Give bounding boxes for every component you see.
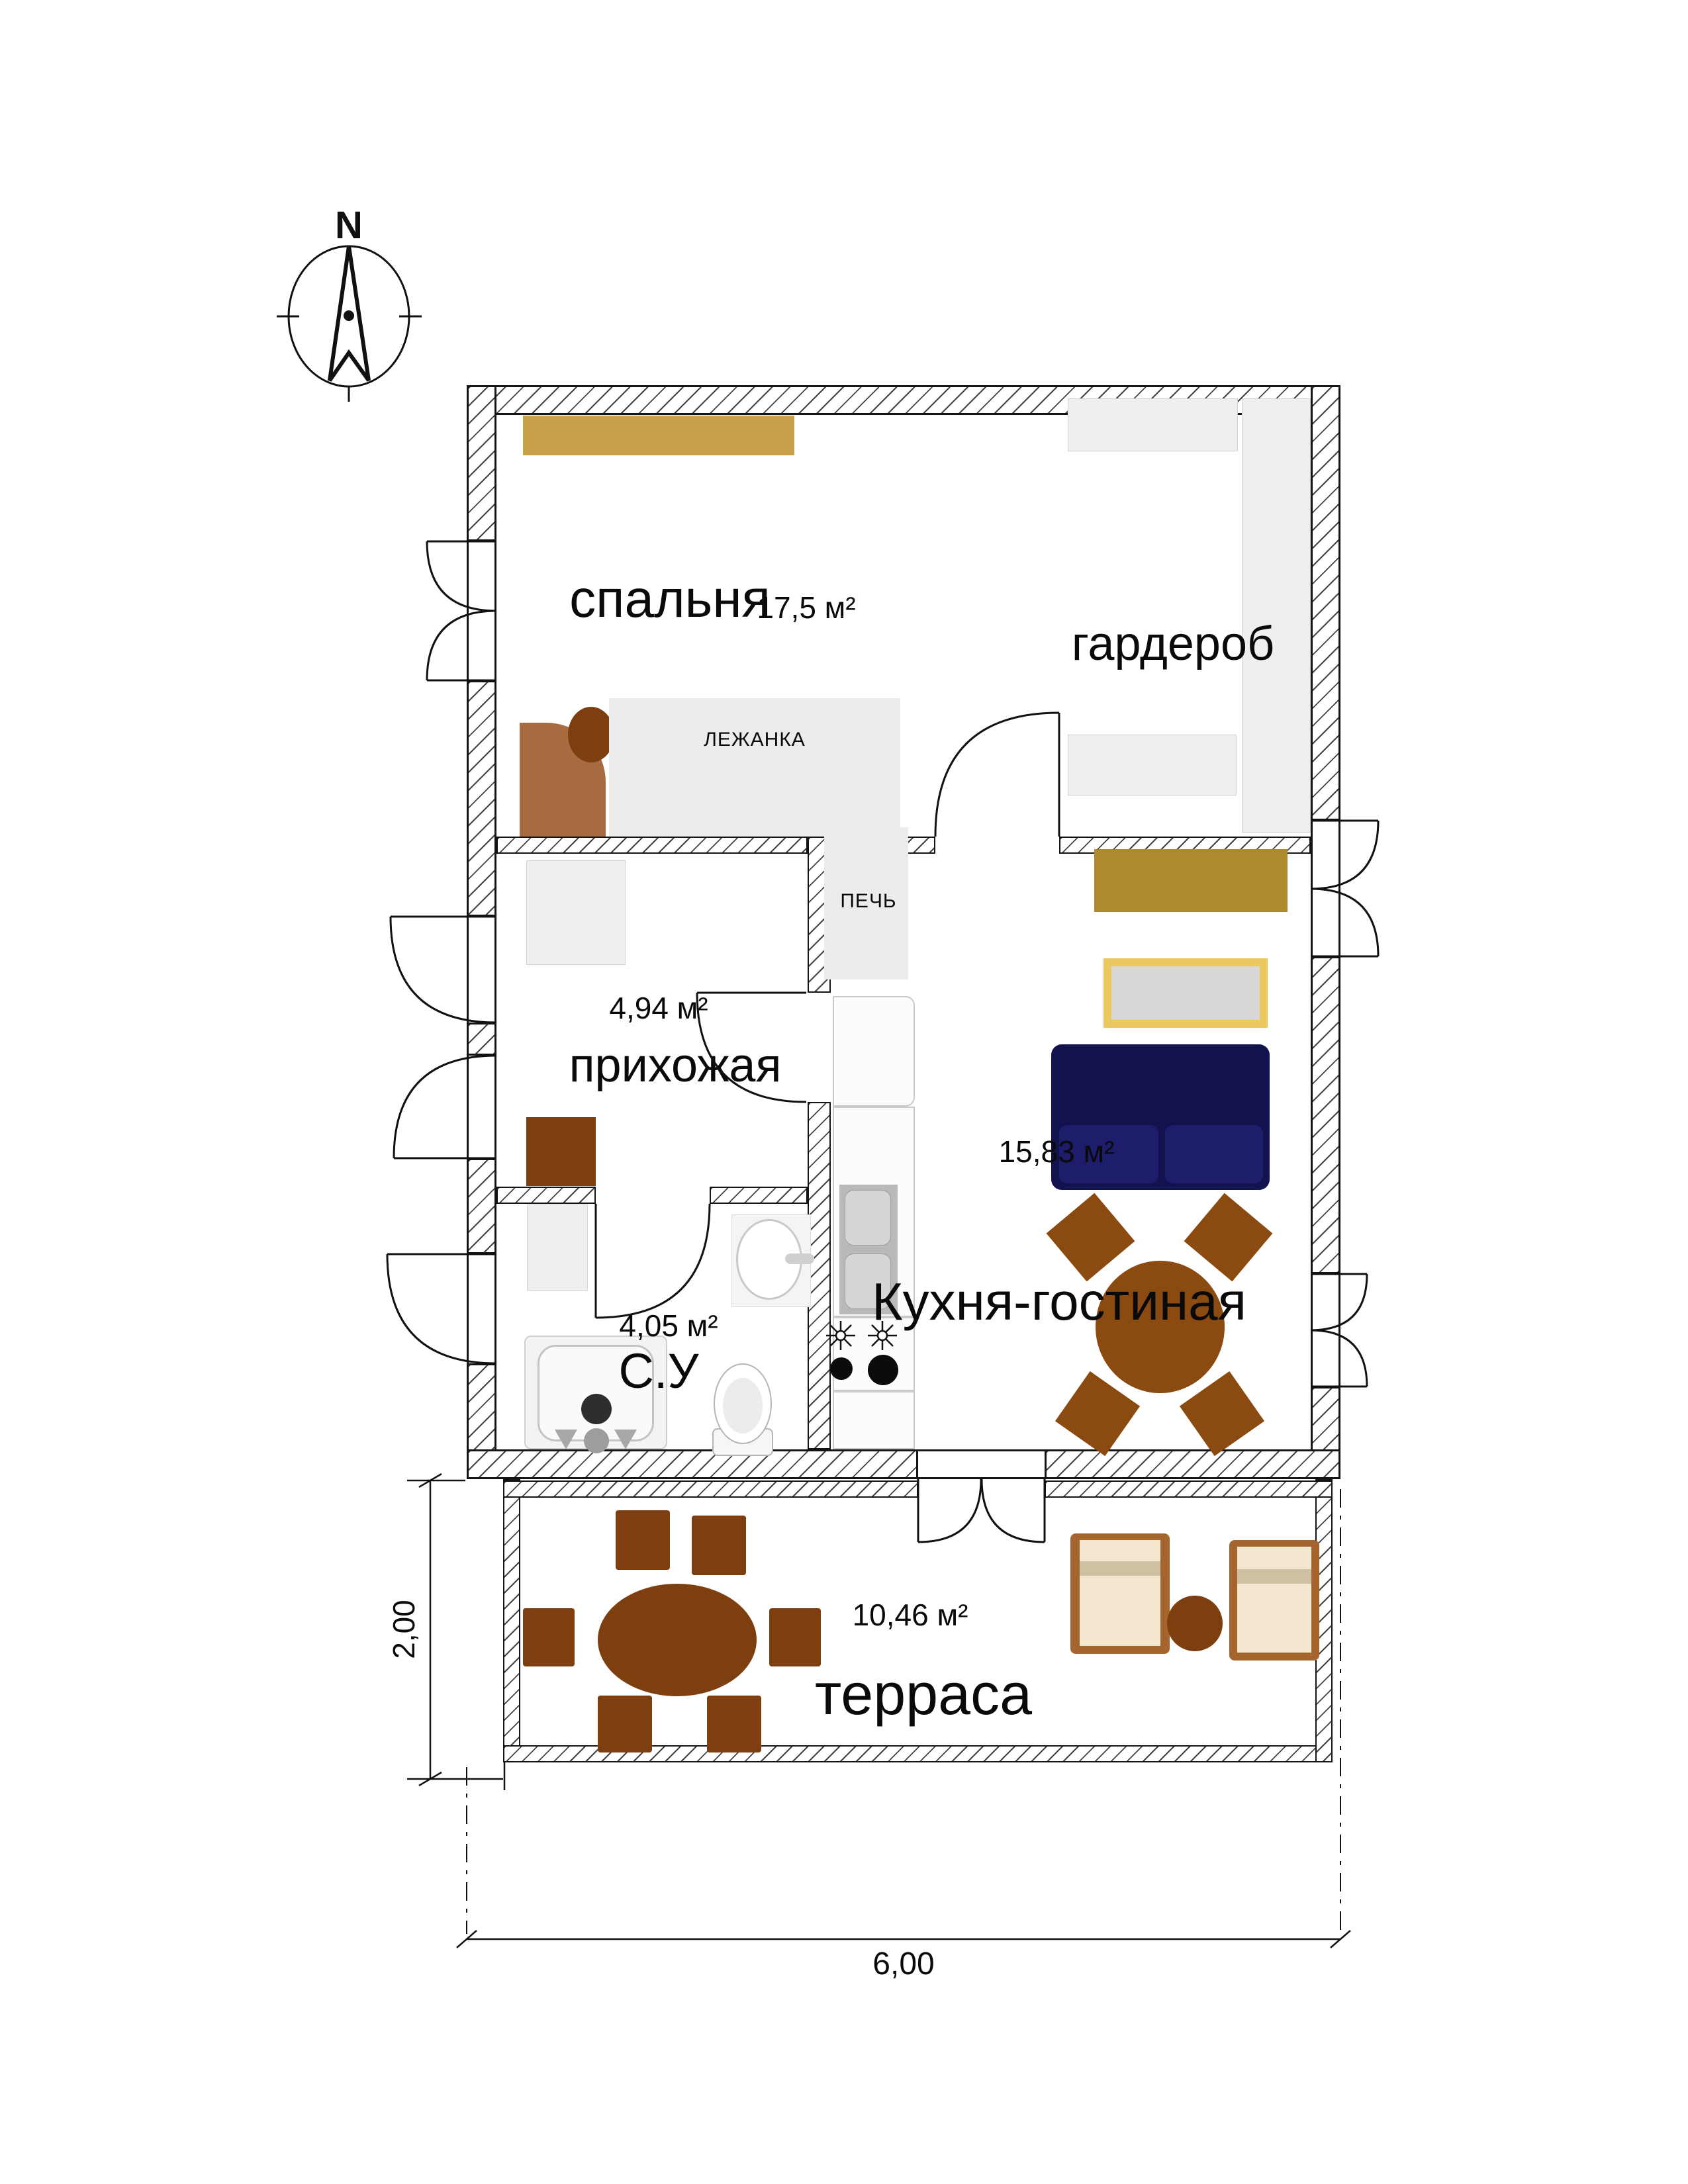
room-area-terrace: 10,46 м² [853, 1600, 968, 1630]
room-area-kitchen-living: 15,83 м² [999, 1136, 1115, 1167]
shower-drain [581, 1394, 612, 1424]
room-label-hallway: прихожая [569, 1042, 782, 1089]
exterior-wall-left-seg2 [467, 680, 496, 917]
tv-panel [1103, 958, 1268, 1028]
fixture-label-stove-bed: ЛЕЖАНКА [704, 730, 806, 750]
dimension-label-terrace-depth: 2,00 [389, 1600, 419, 1659]
compass: N [277, 204, 422, 402]
window-kitchen-right-lower [1311, 1274, 1340, 1387]
toilet-bowl-inner [723, 1378, 763, 1433]
shower-jet-left [555, 1430, 577, 1449]
terrace-table [598, 1584, 757, 1696]
wardrobe-closet-right [1242, 398, 1311, 833]
terrace-chair-bottom-2 [707, 1696, 761, 1752]
window-hallway-left-upper [467, 917, 496, 1023]
dining-chair-top-right [1184, 1193, 1273, 1282]
lounge-chair-right [1229, 1540, 1319, 1661]
kitchen-gold-cabinet [1094, 849, 1288, 912]
room-label-wardrobe: гардероб [1072, 620, 1275, 668]
exterior-wall-left-seg4 [467, 1158, 496, 1254]
interior-wall-bathroom-top-seg1 [496, 1187, 596, 1204]
dimension-label-house-width: 6,00 [872, 1948, 934, 1980]
exterior-wall-left-seg3 [467, 1023, 496, 1056]
lounge-chair-left-band [1080, 1561, 1160, 1576]
kitchen-sink-basin-top [845, 1190, 891, 1246]
bedroom-wall-shelf [523, 416, 794, 455]
bedroom-stool [568, 707, 614, 762]
exterior-wall-bottom-seg1 [467, 1449, 918, 1479]
compass-north-label: N [335, 204, 363, 247]
bathroom-washer [527, 1205, 588, 1291]
dining-chair-top-left [1047, 1193, 1135, 1282]
terrace-wall-top-seg2 [1045, 1480, 1333, 1498]
terrace-chair-left [523, 1608, 575, 1666]
window-hallway-left-lower [467, 1056, 496, 1158]
fixture-label-stove: ПЕЧЬ [840, 891, 896, 911]
room-label-bedroom: спальня [569, 572, 771, 625]
room-area-bathroom: 4,05 м² [619, 1310, 718, 1341]
room-area-hallway: 4,94 м² [609, 993, 708, 1023]
exterior-wall-right-seg1 [1311, 385, 1340, 821]
door-opening-terrace [918, 1449, 1045, 1479]
compass-needle [330, 246, 369, 381]
lounge-chair-right-band [1237, 1569, 1311, 1584]
room-label-terrace: терраса [815, 1665, 1032, 1723]
door-terrace-double [918, 1479, 1045, 1542]
interior-wall-bedroom-bottom [496, 837, 808, 854]
terrace-wall-top-seg1 [503, 1480, 918, 1498]
terrace-chair-bottom-1 [598, 1696, 652, 1752]
room-label-bathroom: С.У [618, 1347, 698, 1396]
door-bedroom-kitchen [935, 713, 1059, 837]
window-bedroom-left [467, 541, 496, 680]
kitchen-counter-end [833, 1391, 915, 1449]
wardrobe-closet-top [1068, 398, 1238, 451]
room-label-kitchen-living: Кухня-гостиная [872, 1275, 1246, 1328]
interior-wall-vertical-lower [808, 1102, 831, 1449]
stove-bed-platform [609, 698, 900, 837]
hallway-bench [526, 1117, 596, 1186]
terrace-chair-top-2 [692, 1516, 746, 1575]
exterior-wall-bottom-seg2 [1045, 1449, 1340, 1479]
shower-jet-right [614, 1430, 637, 1449]
lounge-side-table [1167, 1596, 1223, 1651]
exterior-wall-left-seg1 [467, 385, 496, 541]
window-kitchen-right-upper [1311, 821, 1340, 956]
exterior-wall-right-seg2 [1311, 956, 1340, 1274]
sink-faucet [785, 1253, 814, 1264]
door-hallway-bathroom [596, 1204, 710, 1318]
room-area-bedroom: 17,5 м² [757, 592, 855, 623]
hallway-cabinet [526, 860, 626, 965]
lounge-chair-right-cushion [1237, 1547, 1311, 1653]
wardrobe-closet-bottom [1068, 735, 1237, 796]
lounge-chair-left-cushion [1080, 1540, 1160, 1646]
kitchen-fridge [833, 996, 915, 1107]
floor-plan-canvas: спальня 17,5 м² гардероб ЛЕЖАНКА ПЕЧЬ 4,… [0, 0, 1688, 2184]
window-bathroom-left [467, 1254, 496, 1363]
sofa-cushion-right [1165, 1125, 1263, 1183]
terrace-wall-left [503, 1479, 520, 1762]
terrace-chair-top-1 [616, 1510, 670, 1570]
lounge-chair-left [1070, 1533, 1170, 1654]
terrace-chair-right [769, 1608, 821, 1666]
shower-head [584, 1428, 609, 1453]
interior-wall-bathroom-top-seg2 [710, 1187, 808, 1204]
